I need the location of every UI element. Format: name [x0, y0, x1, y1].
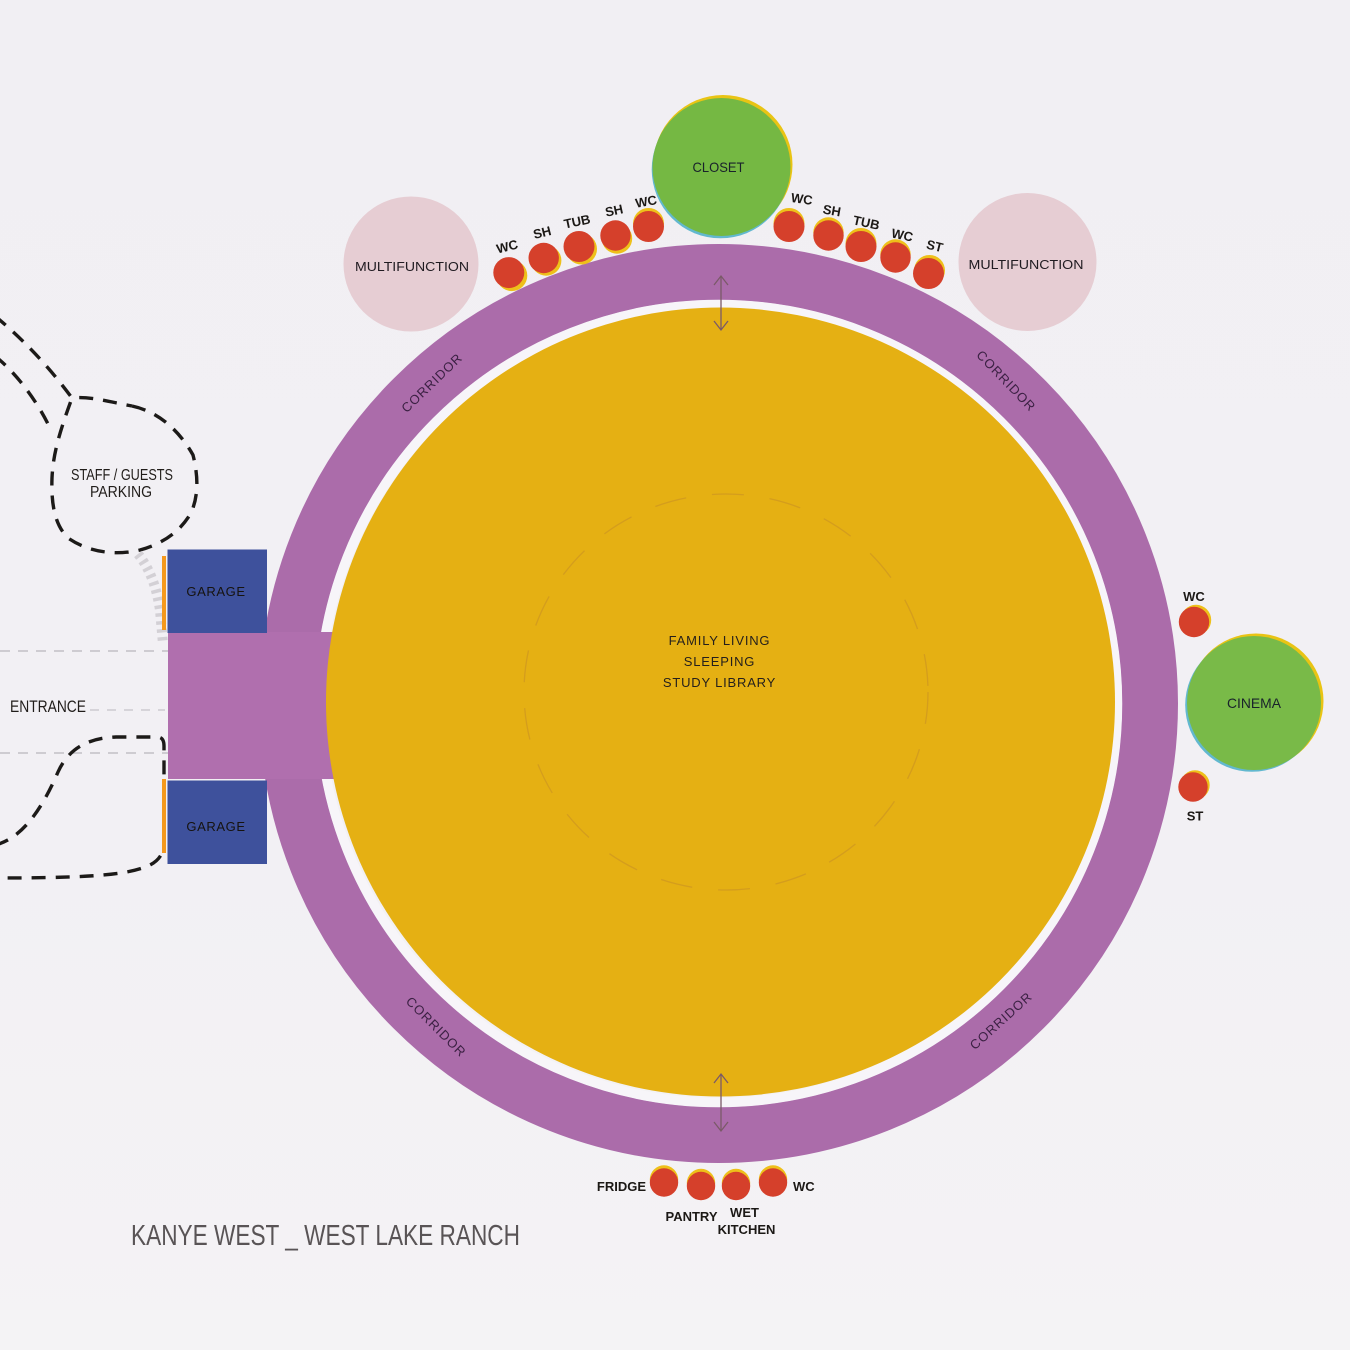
svg-text:CLOSET: CLOSET	[693, 159, 745, 175]
svg-text:SH: SH	[822, 202, 842, 220]
svg-text:ST: ST	[1187, 809, 1204, 824]
svg-text:SLEEPING: SLEEPING	[684, 654, 755, 669]
svg-text:WC: WC	[1183, 589, 1205, 604]
svg-text:FRIDGE: FRIDGE	[597, 1179, 646, 1194]
svg-text:KANYE WEST _ WEST LAKE RANCH: KANYE WEST _ WEST LAKE RANCH	[131, 1220, 520, 1252]
svg-text:KITCHEN: KITCHEN	[718, 1222, 776, 1237]
svg-text:STAFF / GUESTS: STAFF / GUESTS	[71, 467, 173, 484]
svg-text:WC: WC	[793, 1179, 815, 1194]
svg-text:GARAGE: GARAGE	[186, 584, 245, 599]
svg-text:MULTIFUNCTION: MULTIFUNCTION	[969, 257, 1084, 272]
svg-text:MULTIFUNCTION: MULTIFUNCTION	[355, 259, 469, 274]
svg-text:CINEMA: CINEMA	[1227, 695, 1282, 711]
svg-text:PARKING: PARKING	[90, 484, 152, 501]
svg-text:WC: WC	[790, 190, 814, 208]
svg-text:STUDY LIBRARY: STUDY LIBRARY	[663, 675, 776, 690]
svg-text:PANTRY: PANTRY	[666, 1209, 718, 1224]
svg-text:FAMILY LIVING: FAMILY LIVING	[669, 633, 771, 648]
svg-text:WET: WET	[730, 1205, 759, 1220]
svg-text:ENTRANCE: ENTRANCE	[10, 697, 86, 716]
svg-text:GARAGE: GARAGE	[186, 819, 245, 834]
